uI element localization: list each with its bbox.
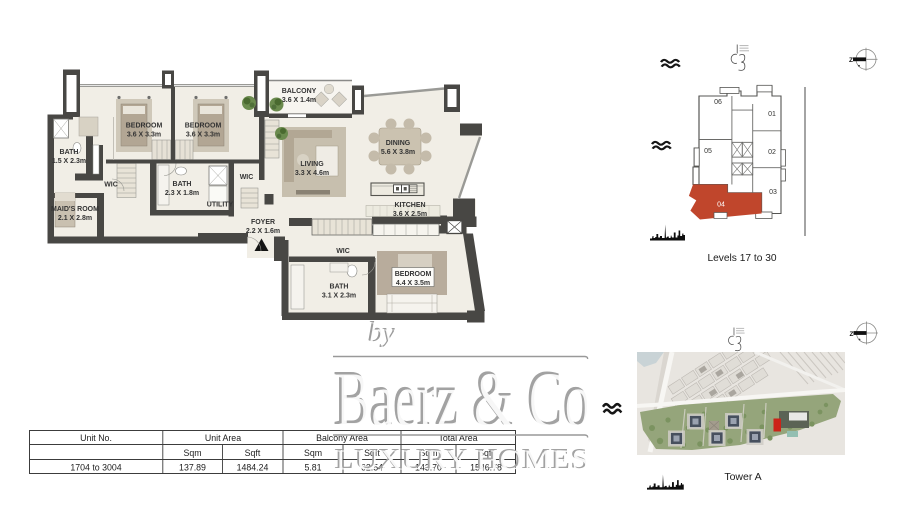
svg-text:05: 05 xyxy=(704,148,712,155)
svg-text:WIC: WIC xyxy=(104,182,118,189)
svg-text:FOYER: FOYER xyxy=(251,219,275,226)
svg-text:BATH: BATH xyxy=(173,181,192,188)
svg-text:1704 to 3004: 1704 to 3004 xyxy=(70,463,121,473)
svg-text:UTILITY: UTILITY xyxy=(207,202,234,209)
svg-text:1.5 X 2.3m: 1.5 X 2.3m xyxy=(52,158,86,165)
svg-text:04: 04 xyxy=(717,202,725,209)
svg-text:BEDROOM: BEDROOM xyxy=(395,271,432,278)
svg-text:by: by xyxy=(369,318,397,350)
svg-text:MAID'S ROOM: MAID'S ROOM xyxy=(51,206,99,213)
svg-text:Levels 17 to 30: Levels 17 to 30 xyxy=(707,253,776,264)
svg-text:3.1 X 2.3m: 3.1 X 2.3m xyxy=(322,293,356,300)
svg-text:3.6 X 3.3m: 3.6 X 3.3m xyxy=(186,132,220,139)
svg-text:3.6 X 1.4m: 3.6 X 1.4m xyxy=(282,97,316,104)
svg-text:2.3 X 1.8m: 2.3 X 1.8m xyxy=(165,190,199,197)
svg-text:Unit Area: Unit Area xyxy=(205,433,241,443)
svg-text:01: 01 xyxy=(768,111,776,118)
svg-text:03: 03 xyxy=(769,189,777,196)
svg-text:Sqm: Sqm xyxy=(304,448,322,458)
svg-text:LUXURY HOMES: LUXURY HOMES xyxy=(336,446,590,477)
svg-text:BEDROOM: BEDROOM xyxy=(126,123,163,130)
svg-text:WIC: WIC xyxy=(336,248,350,255)
svg-text:BATH: BATH xyxy=(330,284,349,291)
svg-text:2.2 X 1.6m: 2.2 X 1.6m xyxy=(246,228,280,235)
svg-text:WIC: WIC xyxy=(240,174,254,181)
svg-text:3.6 X 2.5m: 3.6 X 2.5m xyxy=(393,211,427,218)
svg-text:Sqm: Sqm xyxy=(183,448,201,458)
svg-text:DINING: DINING xyxy=(386,140,411,147)
svg-text:02: 02 xyxy=(768,149,776,156)
svg-text:137.89: 137.89 xyxy=(179,463,206,473)
svg-text:Tower A: Tower A xyxy=(724,471,761,483)
svg-text:2.1 X 2.8m: 2.1 X 2.8m xyxy=(58,215,92,222)
svg-text:KITCHEN: KITCHEN xyxy=(394,202,425,209)
svg-text:BEDROOM: BEDROOM xyxy=(185,123,222,130)
svg-text:BALCONY: BALCONY xyxy=(282,88,317,95)
svg-text:3.3 X 4.6m: 3.3 X 4.6m xyxy=(295,170,329,177)
svg-text:LIVING: LIVING xyxy=(300,161,324,168)
svg-text:5.81: 5.81 xyxy=(304,463,321,473)
svg-text:Unit No.: Unit No. xyxy=(80,433,112,443)
svg-text:BATH: BATH xyxy=(60,149,79,156)
svg-text:Baerz & Co: Baerz & Co xyxy=(336,357,592,444)
svg-text:1484.24: 1484.24 xyxy=(237,463,269,473)
svg-text:Sqft: Sqft xyxy=(245,448,261,458)
svg-text:3.6 X 3.3m: 3.6 X 3.3m xyxy=(127,132,161,139)
svg-text:06: 06 xyxy=(714,99,722,106)
svg-text:5.6 X 3.8m: 5.6 X 3.8m xyxy=(381,149,415,156)
svg-text:4.4 X 3.5m: 4.4 X 3.5m xyxy=(396,280,430,287)
